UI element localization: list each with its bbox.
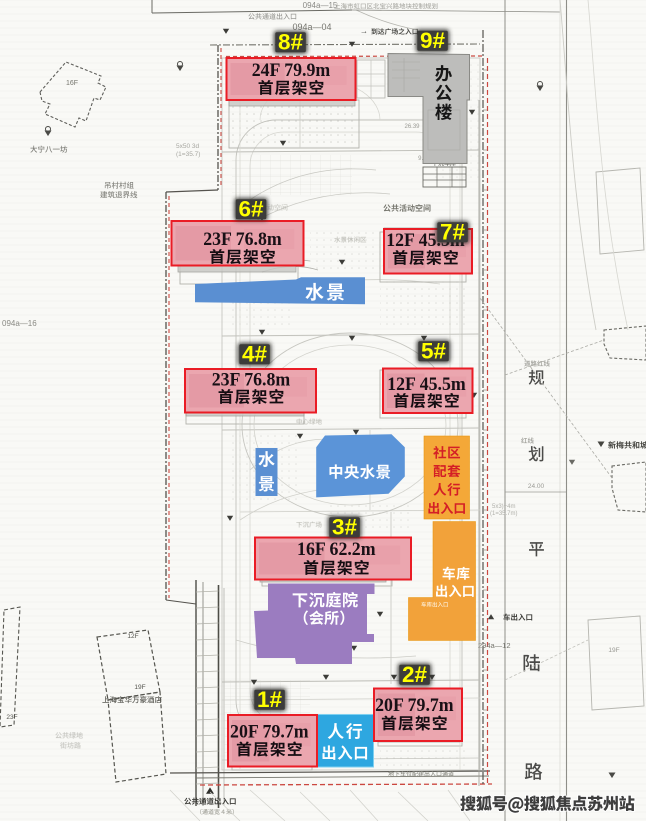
svg-text:23F 76.8m: 23F 76.8m: [212, 370, 291, 391]
svg-text:23F 76.8m: 23F 76.8m: [203, 229, 282, 250]
svg-text:→: →: [360, 27, 368, 36]
svg-text:19F: 19F: [608, 647, 619, 654]
svg-text:294a—12: 294a—12: [478, 641, 511, 650]
svg-text:2#: 2#: [402, 662, 428, 687]
svg-text:16F 62.2m: 16F 62.2m: [297, 539, 376, 560]
svg-text:3#: 3#: [332, 515, 358, 540]
svg-text:5x50 3d: 5x50 3d: [176, 143, 200, 150]
svg-text:12F: 12F: [127, 633, 138, 640]
svg-text:16F: 16F: [66, 80, 78, 87]
svg-text:20F 79.7m: 20F 79.7m: [230, 722, 309, 743]
svg-text:8#: 8#: [278, 30, 304, 55]
svg-text:12F 45.5m: 12F 45.5m: [387, 374, 466, 395]
svg-text:1#: 1#: [257, 687, 283, 712]
svg-text:9#: 9#: [420, 28, 446, 53]
svg-text:5x3)+4m: 5x3)+4m: [492, 504, 516, 510]
svg-text:(1=35.7m): (1=35.7m): [490, 511, 518, 517]
svg-text:5#: 5#: [421, 339, 447, 364]
svg-text:(1=35.7): (1=35.7): [176, 151, 200, 158]
svg-text:26.39: 26.39: [404, 124, 420, 130]
svg-text:23F: 23F: [6, 714, 17, 721]
svg-text:4#: 4#: [242, 342, 268, 367]
svg-text:20F 79.7m: 20F 79.7m: [375, 695, 454, 716]
svg-text:094a—16: 094a—16: [2, 319, 37, 328]
svg-text:24.00: 24.00: [528, 483, 545, 490]
svg-text:6#: 6#: [238, 197, 264, 222]
svg-text:19F: 19F: [134, 684, 145, 691]
svg-text:094a—15: 094a—15: [303, 1, 338, 10]
svg-text:24F 79.9m: 24F 79.9m: [252, 60, 331, 81]
svg-text:7#: 7#: [440, 220, 466, 245]
